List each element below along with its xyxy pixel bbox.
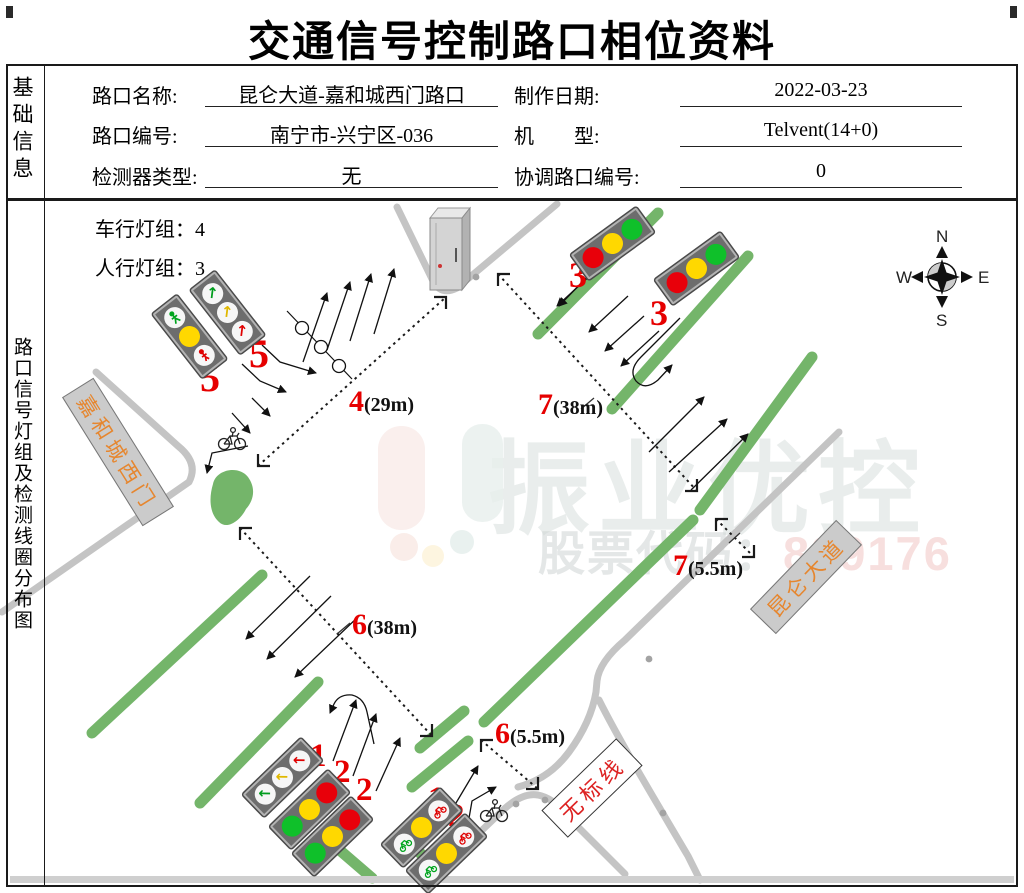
field-value-coordinated-id: 0 (680, 160, 962, 183)
field-label-coordinated-id: 协调路口编号: (514, 161, 640, 190)
field-label-intersection-id: 路口编号: (92, 120, 178, 149)
field-label-creation-date: 制作日期: (514, 80, 600, 109)
underline (205, 187, 498, 188)
field-value-detector-type: 无 (205, 160, 498, 189)
underline (680, 106, 962, 107)
underline (680, 187, 962, 188)
field-label-machine-type: 机 型: (514, 120, 600, 149)
field-label-intersection-name: 路口名称: (92, 80, 178, 109)
field-value-creation-date: 2022-03-23 (680, 79, 962, 102)
field-label-detector-type: 检测器类型: (92, 161, 198, 190)
underline (680, 146, 962, 147)
underline (205, 106, 498, 107)
basic-info-table: 路口名称: 昆仑大道-嘉和城西门路口 路口编号: 南宁市-兴宁区-036 检测器… (0, 0, 1024, 890)
field-value-machine-type: Telvent(14+0) (680, 119, 962, 142)
field-value-intersection-id: 南宁市-兴宁区-036 (205, 119, 498, 148)
underline (205, 146, 498, 147)
field-value-intersection-name: 昆仑大道-嘉和城西门路口 (205, 79, 498, 108)
